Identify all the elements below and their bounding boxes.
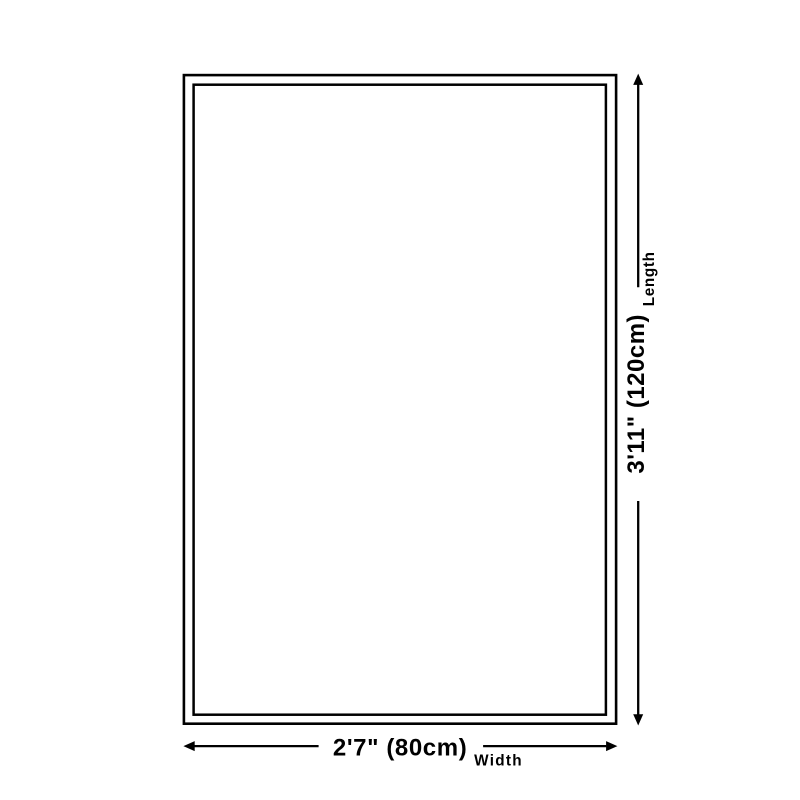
svg-text:2'7" (80cm): 2'7" (80cm) bbox=[333, 735, 467, 762]
svg-text:Width: Width bbox=[474, 752, 523, 769]
svg-text:Length: Length bbox=[641, 251, 658, 306]
svg-text:3'11" (120cm): 3'11" (120cm) bbox=[623, 314, 650, 474]
